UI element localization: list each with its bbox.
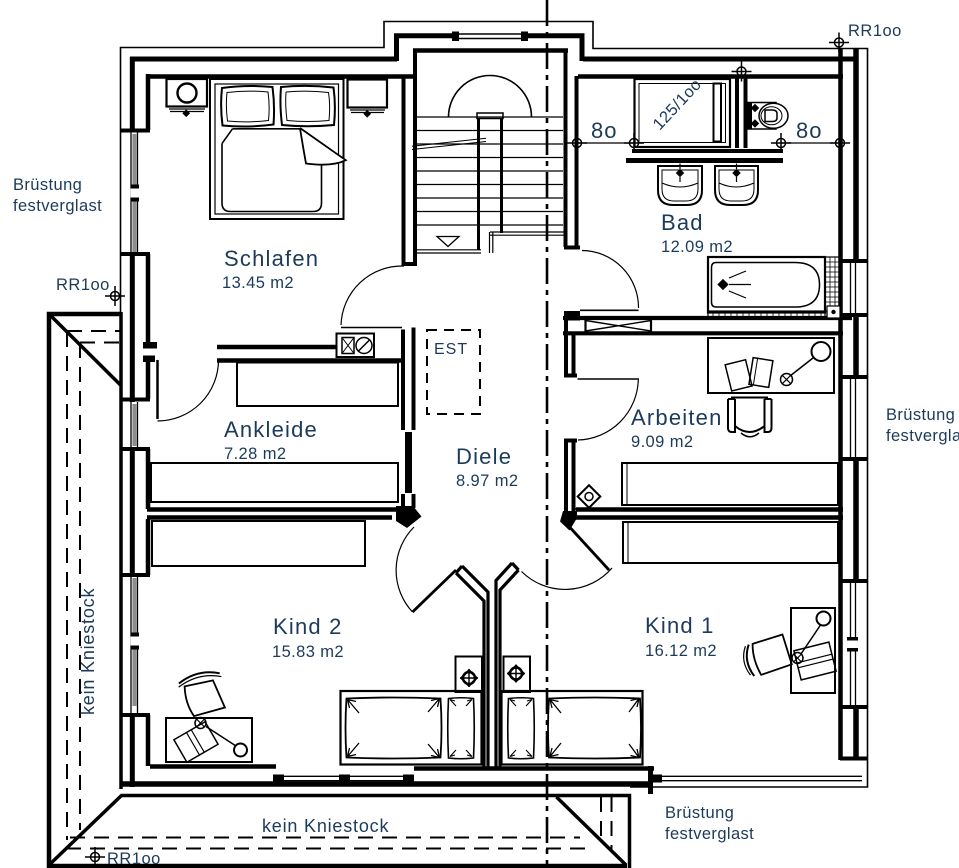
svg-text:kein Kniestock: kein Kniestock xyxy=(78,588,98,715)
svg-text:festverglast: festverglast xyxy=(13,197,102,215)
svg-text:Kind 2: Kind 2 xyxy=(273,614,343,639)
svg-text:8.97 m2: 8.97 m2 xyxy=(456,472,518,490)
svg-text:Brüstung: Brüstung xyxy=(13,176,82,194)
svg-text:8o: 8o xyxy=(591,118,617,143)
svg-text:RR1oo: RR1oo xyxy=(56,276,110,294)
svg-text:Brüstung: Brüstung xyxy=(665,804,734,822)
svg-text:festverglast: festverglast xyxy=(665,825,754,843)
svg-text:RR1oo: RR1oo xyxy=(107,850,161,868)
svg-text:EST: EST xyxy=(434,341,468,358)
svg-text:festverglast: festverglast xyxy=(886,427,959,445)
svg-text:15.83 m2: 15.83 m2 xyxy=(272,643,344,661)
svg-text:Ankleide: Ankleide xyxy=(224,417,318,442)
svg-text:Kind 1: Kind 1 xyxy=(645,613,715,638)
svg-text:Arbeiten: Arbeiten xyxy=(631,405,723,430)
svg-text:RR1oo: RR1oo xyxy=(848,22,902,40)
svg-text:12.09 m2: 12.09 m2 xyxy=(661,238,733,256)
svg-text:9.09 m2: 9.09 m2 xyxy=(631,433,693,451)
svg-text:16.12 m2: 16.12 m2 xyxy=(645,642,717,660)
svg-text:13.45 m2: 13.45 m2 xyxy=(222,274,294,292)
svg-text:Diele: Diele xyxy=(456,444,512,469)
svg-text:7.28 m2: 7.28 m2 xyxy=(224,445,286,463)
svg-text:Schlafen: Schlafen xyxy=(224,246,319,271)
svg-text:Bad: Bad xyxy=(661,210,704,235)
svg-text:kein Kniestock: kein Kniestock xyxy=(262,816,389,836)
svg-text:Brüstung: Brüstung xyxy=(886,406,955,424)
svg-text:8o: 8o xyxy=(796,118,822,143)
